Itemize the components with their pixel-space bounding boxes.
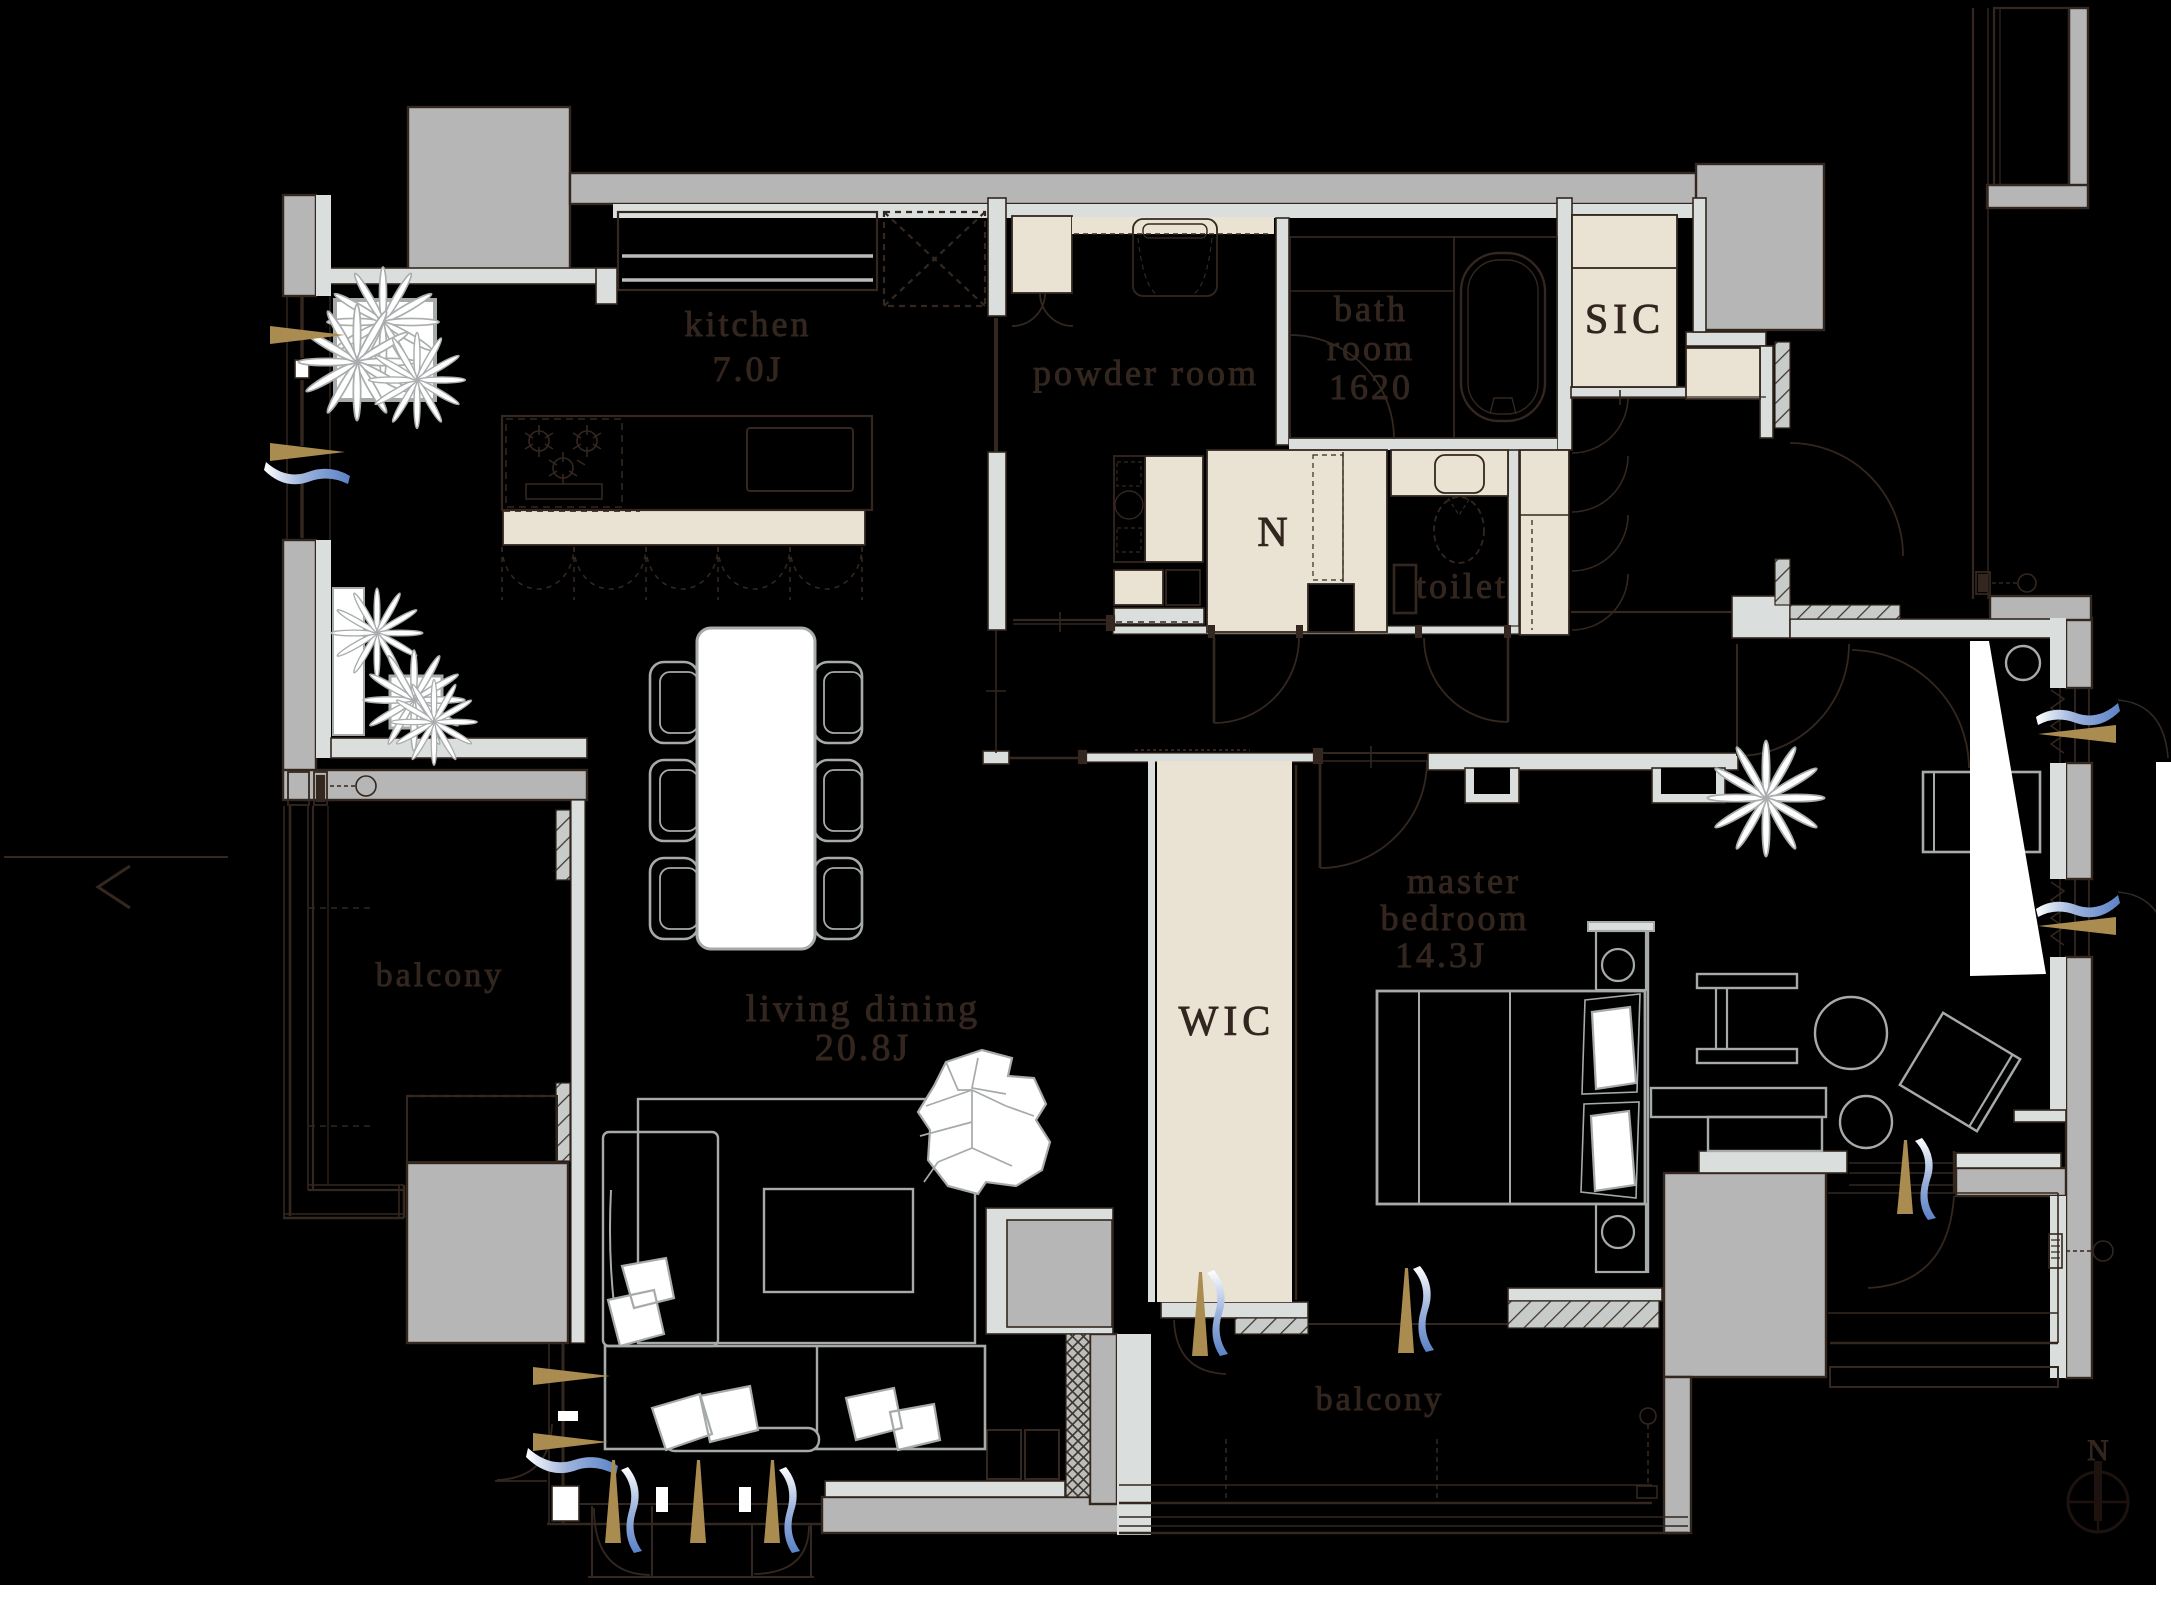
svg-text:room: room bbox=[1327, 328, 1415, 368]
svg-text:balcony: balcony bbox=[376, 957, 505, 994]
svg-text:20.8J: 20.8J bbox=[815, 1027, 911, 1069]
svg-text:bath: bath bbox=[1334, 289, 1408, 329]
svg-text:SIC: SIC bbox=[1585, 297, 1665, 343]
svg-text:N: N bbox=[1257, 510, 1290, 556]
svg-text:7.0J: 7.0J bbox=[712, 349, 783, 389]
svg-text:powder room: powder room bbox=[1033, 353, 1259, 393]
svg-text:bedroom: bedroom bbox=[1381, 898, 1530, 938]
svg-text:master: master bbox=[1407, 861, 1521, 901]
svg-text:living dining: living dining bbox=[746, 988, 980, 1030]
svg-text:N: N bbox=[2087, 1434, 2109, 1467]
svg-text:14.3J: 14.3J bbox=[1395, 935, 1487, 975]
svg-text:kitchen: kitchen bbox=[685, 304, 812, 344]
svg-text:toilet: toilet bbox=[1416, 566, 1508, 606]
svg-text:balcony: balcony bbox=[1316, 1381, 1445, 1418]
svg-text:WIC: WIC bbox=[1179, 999, 1276, 1045]
svg-text:1620: 1620 bbox=[1329, 367, 1413, 407]
